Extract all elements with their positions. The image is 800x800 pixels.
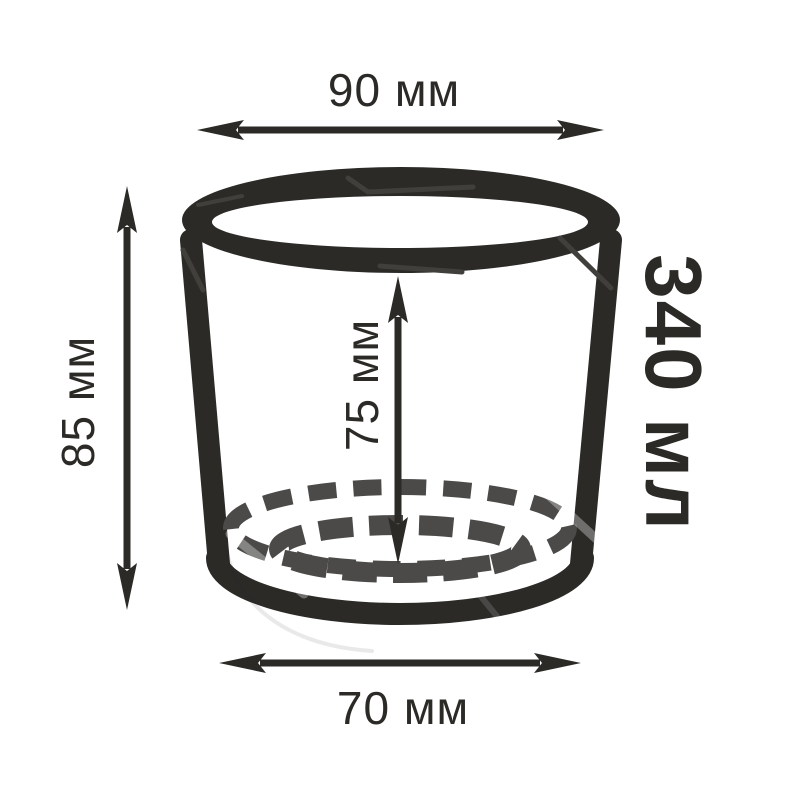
arrowhead-left-icon [219, 653, 266, 673]
arrowhead-down-icon [117, 563, 137, 610]
dimension-arrow-inner-height [388, 276, 408, 564]
label-top-width: 90 мм [328, 67, 460, 113]
cup-wall-right [581, 240, 611, 564]
dimension-arrow-bottom-width [219, 653, 581, 673]
arrowhead-right-icon [534, 653, 581, 673]
label-outer-height: 85 мм [55, 336, 101, 468]
arrowhead-up-icon [117, 186, 137, 233]
arrowhead-left-icon [197, 120, 244, 140]
arrowhead-up-icon [388, 276, 408, 323]
cup-dimension-diagram: 90 мм 85 мм 75 мм 70 мм 340 мл [0, 0, 800, 800]
label-volume: 340 мл [633, 254, 713, 532]
dimension-arrow-outer-height [117, 186, 137, 610]
dimension-arrow-top-width [197, 120, 604, 140]
label-inner-height: 75 мм [339, 319, 385, 451]
arrowhead-right-icon [557, 120, 604, 140]
cup-rim-opening [212, 196, 588, 248]
label-bottom-width: 70 мм [337, 685, 469, 731]
